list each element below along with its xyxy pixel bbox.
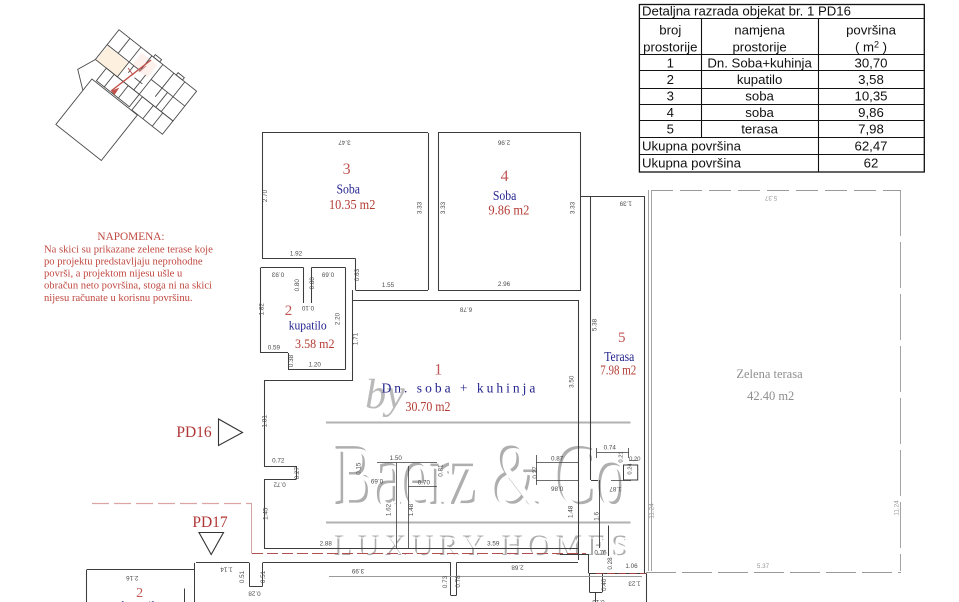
svg-text:1.50: 1.50 [390, 455, 403, 462]
svg-text:30.70 m2: 30.70 m2 [406, 399, 451, 414]
svg-text:4: 4 [667, 105, 674, 120]
svg-text:3.47: 3.47 [338, 139, 351, 146]
svg-text:PD17: PD17 [192, 514, 228, 531]
svg-text:( m2 ): ( m2 ) [855, 40, 887, 55]
svg-text:3.99: 3.99 [351, 567, 364, 574]
svg-text:0.80: 0.80 [309, 277, 316, 290]
svg-text:0.27: 0.27 [294, 466, 301, 479]
svg-text:0.78: 0.78 [455, 575, 462, 588]
svg-text:0.21: 0.21 [618, 451, 624, 462]
svg-text:1.82: 1.82 [258, 303, 265, 316]
svg-text:prostorije: prostorije [643, 40, 697, 55]
svg-text:3,58: 3,58 [858, 72, 884, 87]
svg-text:5.37: 5.37 [764, 194, 777, 201]
svg-text:7,98: 7,98 [858, 122, 884, 137]
svg-text:broj: broj [659, 23, 681, 38]
svg-text:3.59: 3.59 [487, 541, 500, 548]
svg-text:11.24: 11.24 [893, 500, 900, 516]
svg-text:2.96: 2.96 [498, 281, 511, 288]
svg-text:1.14: 1.14 [220, 565, 233, 572]
svg-text:3: 3 [343, 161, 351, 178]
svg-text:10,35: 10,35 [854, 89, 887, 104]
svg-text:0.86: 0.86 [550, 485, 563, 492]
svg-text:nijesu računate u korisnu povr: nijesu računate u korisnu površinu. [44, 293, 193, 304]
svg-text:3.33: 3.33 [417, 201, 424, 214]
svg-text:1.45: 1.45 [262, 507, 269, 520]
svg-text:Dn. Soba+kuhinja: Dn. Soba+kuhinja [707, 56, 812, 71]
svg-text:0.69: 0.69 [321, 271, 334, 278]
svg-text:Soba: Soba [336, 182, 360, 197]
svg-text:kupatilo: kupatilo [121, 598, 160, 602]
svg-text:2.88: 2.88 [320, 541, 333, 548]
svg-text:soba: soba [745, 89, 774, 104]
svg-text:2.96: 2.96 [497, 139, 510, 146]
svg-text:1.92: 1.92 [290, 251, 303, 258]
svg-text:11.24: 11.24 [649, 503, 656, 519]
svg-text:0.72: 0.72 [273, 481, 286, 488]
svg-text:0.80: 0.80 [294, 279, 301, 292]
svg-text:terasa: terasa [741, 122, 778, 137]
svg-text:Zelena terasa: Zelena terasa [736, 367, 803, 381]
svg-text:30,70: 30,70 [854, 56, 887, 71]
svg-text:0.10: 0.10 [301, 304, 314, 311]
svg-text:1.87: 1.87 [609, 485, 622, 492]
svg-text:9.86 m2: 9.86 m2 [488, 203, 529, 218]
svg-text:2.16: 2.16 [126, 574, 139, 581]
svg-text:3: 3 [667, 89, 674, 104]
svg-text:Dn. soba + kuhinja: Dn. soba + kuhinja [382, 381, 539, 396]
svg-text:1.48: 1.48 [408, 503, 415, 516]
svg-text:1.55: 1.55 [382, 282, 395, 289]
svg-text:42.40 m2: 42.40 m2 [747, 389, 794, 403]
svg-text:namjena: namjena [734, 23, 785, 38]
svg-text:0.69: 0.69 [370, 477, 383, 484]
svg-text:2: 2 [667, 72, 674, 87]
svg-text:0.81: 0.81 [438, 464, 445, 477]
svg-text:3.58 m2: 3.58 m2 [295, 336, 335, 351]
svg-text:0.87: 0.87 [551, 456, 564, 463]
svg-text:0.24: 0.24 [627, 463, 633, 475]
svg-text:3.33: 3.33 [569, 201, 576, 214]
svg-text:1.81: 1.81 [262, 415, 269, 428]
svg-text:62,47: 62,47 [854, 139, 887, 154]
svg-text:0.72: 0.72 [272, 457, 285, 464]
svg-text:0.63: 0.63 [354, 268, 361, 281]
svg-text:3.50: 3.50 [569, 375, 576, 388]
svg-text:1.48: 1.48 [568, 505, 575, 518]
svg-text:1.20: 1.20 [309, 362, 322, 369]
svg-text:2.20: 2.20 [335, 312, 342, 325]
svg-text:soba: soba [745, 105, 774, 120]
svg-text:obračun neto površina, stoga n: obračun neto površina, stoga ni na skici [44, 281, 212, 292]
svg-text:1: 1 [667, 56, 674, 71]
svg-text:0.27: 0.27 [532, 466, 539, 479]
svg-text:0.59: 0.59 [268, 345, 281, 352]
svg-text:0.76: 0.76 [594, 550, 607, 557]
svg-text:prostorije: prostorije [732, 40, 786, 55]
svg-text:2.70: 2.70 [262, 189, 269, 202]
svg-text:NAPOMENA:: NAPOMENA: [97, 231, 164, 243]
svg-text:0.73: 0.73 [442, 575, 449, 588]
svg-text:Na skici su prikazane zelene t: Na skici su prikazane zelene terase koje [44, 244, 213, 255]
svg-text:4: 4 [501, 168, 509, 185]
svg-text:7.98 m2: 7.98 m2 [600, 363, 636, 378]
svg-text:kupatilo: kupatilo [289, 318, 327, 333]
svg-text:1.6: 1.6 [594, 512, 601, 521]
svg-text:6.78: 6.78 [459, 306, 472, 313]
svg-text:Soba: Soba [493, 188, 517, 203]
svg-text:1.71: 1.71 [352, 332, 359, 345]
svg-text:PD16: PD16 [176, 424, 212, 441]
svg-text:5: 5 [618, 330, 626, 346]
svg-text:0.51: 0.51 [239, 570, 246, 583]
svg-text:Ukupna površina: Ukupna površina [642, 156, 742, 171]
svg-text:10.35 m2: 10.35 m2 [329, 197, 375, 212]
svg-text:1.39: 1.39 [619, 200, 632, 207]
svg-text:0.16: 0.16 [592, 598, 605, 602]
svg-text:po projektu predstavljaju nepr: po projektu predstavljaju neprohodne [44, 257, 203, 268]
svg-text:0.93: 0.93 [271, 271, 284, 278]
svg-text:62: 62 [864, 156, 879, 171]
svg-text:0.15: 0.15 [356, 462, 363, 475]
svg-text:0.20: 0.20 [629, 457, 640, 463]
svg-text:9,86: 9,86 [858, 105, 884, 120]
svg-text:0.51: 0.51 [260, 570, 267, 583]
svg-text:Detaljna razrada objekat br. 1: Detaljna razrada objekat br. 1 PD16 [642, 4, 851, 19]
svg-text:0.74: 0.74 [604, 445, 617, 452]
svg-text:0.70: 0.70 [418, 480, 431, 487]
svg-text:2.68: 2.68 [511, 564, 524, 571]
svg-text:Ukupna površina: Ukupna površina [642, 139, 742, 154]
svg-text:5.37: 5.37 [757, 563, 770, 570]
svg-text:površina: površina [846, 23, 897, 38]
svg-text:kupatilo: kupatilo [737, 72, 782, 87]
svg-text:3.33: 3.33 [440, 201, 447, 214]
svg-text:površi, a projektom nijesu ušl: površi, a projektom nijesu ušle u [44, 269, 183, 280]
svg-text:0.28: 0.28 [248, 590, 261, 597]
svg-text:1.23: 1.23 [628, 580, 641, 587]
svg-text:5.38: 5.38 [591, 318, 598, 331]
svg-text:0.28: 0.28 [607, 557, 614, 570]
svg-text:1.06: 1.06 [625, 563, 638, 570]
svg-text:5: 5 [667, 122, 674, 137]
svg-text:1: 1 [434, 362, 442, 379]
svg-text:1.62: 1.62 [385, 503, 392, 516]
svg-text:0.38: 0.38 [288, 354, 295, 367]
svg-text:0.40: 0.40 [601, 578, 608, 591]
